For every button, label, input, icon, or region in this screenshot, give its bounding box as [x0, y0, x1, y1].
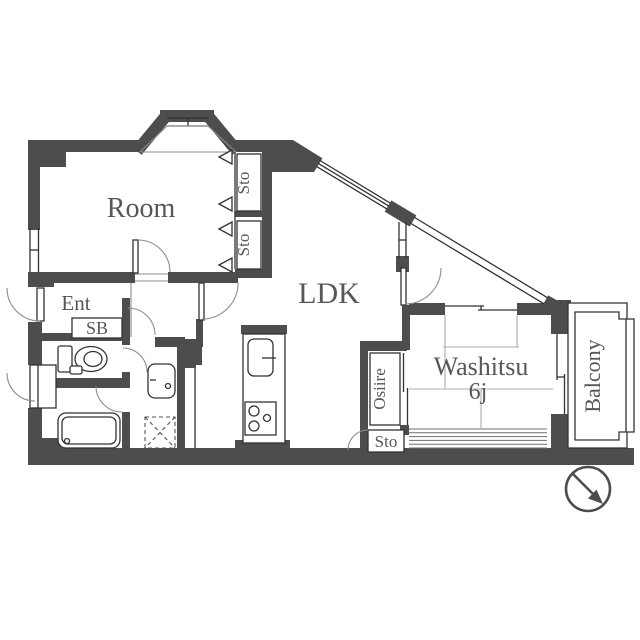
room-label: Room	[107, 193, 176, 224]
fixtures	[58, 334, 285, 448]
entrance-label: Ent	[61, 291, 90, 315]
osiire-label: Osiire	[370, 368, 389, 410]
floor-plan-page: Room LDK Washitsu 6j Balcony Ent SB Sto …	[0, 0, 640, 640]
toilet-icon	[58, 346, 107, 374]
ldk-label: LDK	[298, 277, 360, 310]
washbasin-icon	[148, 364, 175, 398]
washitsu-size-label: 6j	[469, 379, 488, 405]
bathtub-icon	[58, 413, 120, 448]
washitsu-label: Washitsu	[434, 352, 529, 381]
engawa-stripes	[409, 429, 547, 448]
balcony-label: Balcony	[580, 339, 605, 412]
closet-door-markers	[219, 150, 232, 272]
washing-machine-space-icon	[145, 417, 175, 448]
storage-lower-label: Sto	[234, 234, 253, 257]
compass-icon	[566, 467, 610, 511]
shoe-box-label: SB	[86, 318, 108, 338]
storage-ldk-label: Sto	[375, 432, 398, 451]
storage-upper-label: Sto	[234, 172, 253, 195]
kitchen-icon	[243, 334, 285, 443]
floor-plan-canvas: Room LDK Washitsu 6j Balcony Ent SB Sto …	[0, 0, 640, 640]
